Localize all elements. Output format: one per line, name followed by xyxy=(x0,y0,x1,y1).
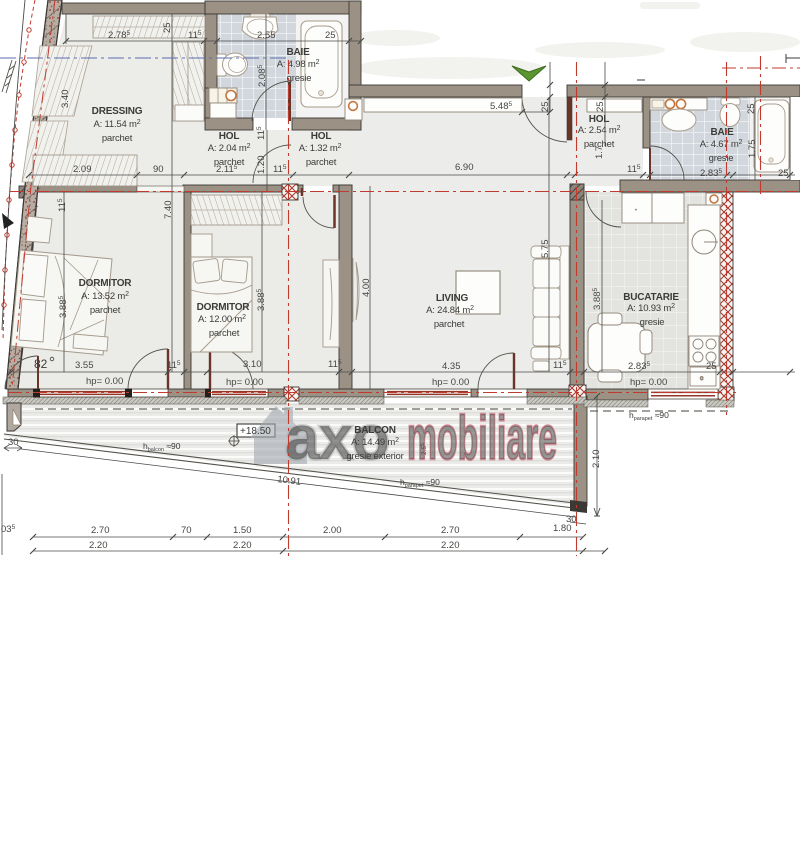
svg-text:82: 82 xyxy=(34,357,48,371)
svg-text:BUCATARIE: BUCATARIE xyxy=(623,292,679,303)
svg-text:BALCON: BALCON xyxy=(354,425,396,436)
svg-text:A: 2.04 m2: A: 2.04 m2 xyxy=(208,143,251,154)
svg-text:2.70: 2.70 xyxy=(441,525,460,536)
svg-text:25: 25 xyxy=(540,101,551,112)
svg-text:mobiliare: mobiliare xyxy=(407,404,557,473)
svg-text:90: 90 xyxy=(153,164,164,175)
svg-text:DRESSING: DRESSING xyxy=(92,106,143,117)
svg-text:70: 70 xyxy=(181,525,192,536)
svg-text:parchet: parchet xyxy=(90,305,121,316)
svg-text:3.55: 3.55 xyxy=(75,360,94,371)
svg-text:A: 12.00 m2: A: 12.00 m2 xyxy=(198,314,246,325)
svg-text:HOL: HOL xyxy=(589,114,610,125)
svg-text:parchet: parchet xyxy=(434,319,465,330)
svg-text:4.00: 4.00 xyxy=(361,279,372,298)
svg-text:parchet: parchet xyxy=(214,157,245,168)
svg-text:BAIE: BAIE xyxy=(286,47,310,58)
svg-text:25: 25 xyxy=(746,103,757,114)
svg-text:parchet: parchet xyxy=(584,139,615,150)
svg-text:25: 25 xyxy=(162,22,173,33)
svg-text:A: 11.54 m2: A: 11.54 m2 xyxy=(94,119,141,130)
svg-text:7.40: 7.40 xyxy=(163,201,174,220)
svg-text:2.00: 2.00 xyxy=(323,525,342,536)
svg-text:A: 13.52 m2: A: 13.52 m2 xyxy=(81,291,129,302)
svg-text:30: 30 xyxy=(8,437,19,448)
svg-text:2.20: 2.20 xyxy=(441,540,460,551)
svg-text:gresie: gresie xyxy=(709,153,734,164)
svg-text:2.70: 2.70 xyxy=(91,525,110,536)
svg-text:hp= 0.00: hp= 0.00 xyxy=(432,377,469,388)
svg-text:1.75: 1.75 xyxy=(747,140,758,159)
svg-text:.: . xyxy=(635,205,637,212)
svg-text:hp= 0.00: hp= 0.00 xyxy=(226,377,263,388)
svg-text:BAIE: BAIE xyxy=(710,127,734,138)
svg-text:1.20: 1.20 xyxy=(256,156,267,175)
svg-text:DORMITOR: DORMITOR xyxy=(79,278,133,289)
svg-text:hp= 0.00: hp= 0.00 xyxy=(86,376,123,387)
svg-text:25: 25 xyxy=(778,168,789,179)
svg-text:A: 1.32 m2: A: 1.32 m2 xyxy=(299,143,342,154)
svg-text:A: 2.54 m2: A: 2.54 m2 xyxy=(578,125,621,136)
svg-text:+18.50: +18.50 xyxy=(240,426,271,437)
svg-text:2.20: 2.20 xyxy=(233,540,252,551)
svg-text:hp= 0.00: hp= 0.00 xyxy=(630,377,667,388)
svg-text:DORMITOR: DORMITOR xyxy=(197,302,251,313)
svg-text:4.35: 4.35 xyxy=(442,361,461,372)
svg-text:2.10: 2.10 xyxy=(591,450,602,469)
svg-text:LIVING: LIVING xyxy=(436,293,469,304)
svg-text:parchet: parchet xyxy=(102,133,133,144)
svg-text:2.09: 2.09 xyxy=(73,164,92,175)
svg-text:25: 25 xyxy=(706,361,717,372)
svg-text:A: 14.49 m2: A: 14.49 m2 xyxy=(351,437,399,448)
svg-text:A: 4.98 m2: A: 4.98 m2 xyxy=(277,59,320,70)
svg-text:25: 25 xyxy=(325,30,336,41)
svg-text:1.80: 1.80 xyxy=(553,523,572,534)
svg-text:HOL: HOL xyxy=(311,131,332,142)
svg-text:parchet: parchet xyxy=(209,328,240,339)
svg-text:1.50: 1.50 xyxy=(233,525,252,536)
svg-text:parchet: parchet xyxy=(306,157,337,168)
svg-text:5.75: 5.75 xyxy=(540,240,551,259)
svg-text:A: 4.67 m2: A: 4.67 m2 xyxy=(700,139,743,150)
svg-text:6.90: 6.90 xyxy=(455,162,474,173)
svg-text:gresie exterior: gresie exterior xyxy=(346,451,403,462)
svg-text:A: 10.93 m2: A: 10.93 m2 xyxy=(627,303,675,314)
svg-text:gresie: gresie xyxy=(640,317,665,328)
svg-text:gresie: gresie xyxy=(287,73,312,84)
svg-text:A: 24.84 m2: A: 24.84 m2 xyxy=(426,305,474,316)
svg-text:3.10: 3.10 xyxy=(243,359,262,370)
svg-text:2.20: 2.20 xyxy=(89,540,108,551)
svg-text:25: 25 xyxy=(595,101,606,112)
svg-text:HOL: HOL xyxy=(219,131,240,142)
svg-text:2.55: 2.55 xyxy=(257,30,276,41)
svg-text:3.40: 3.40 xyxy=(60,90,71,109)
